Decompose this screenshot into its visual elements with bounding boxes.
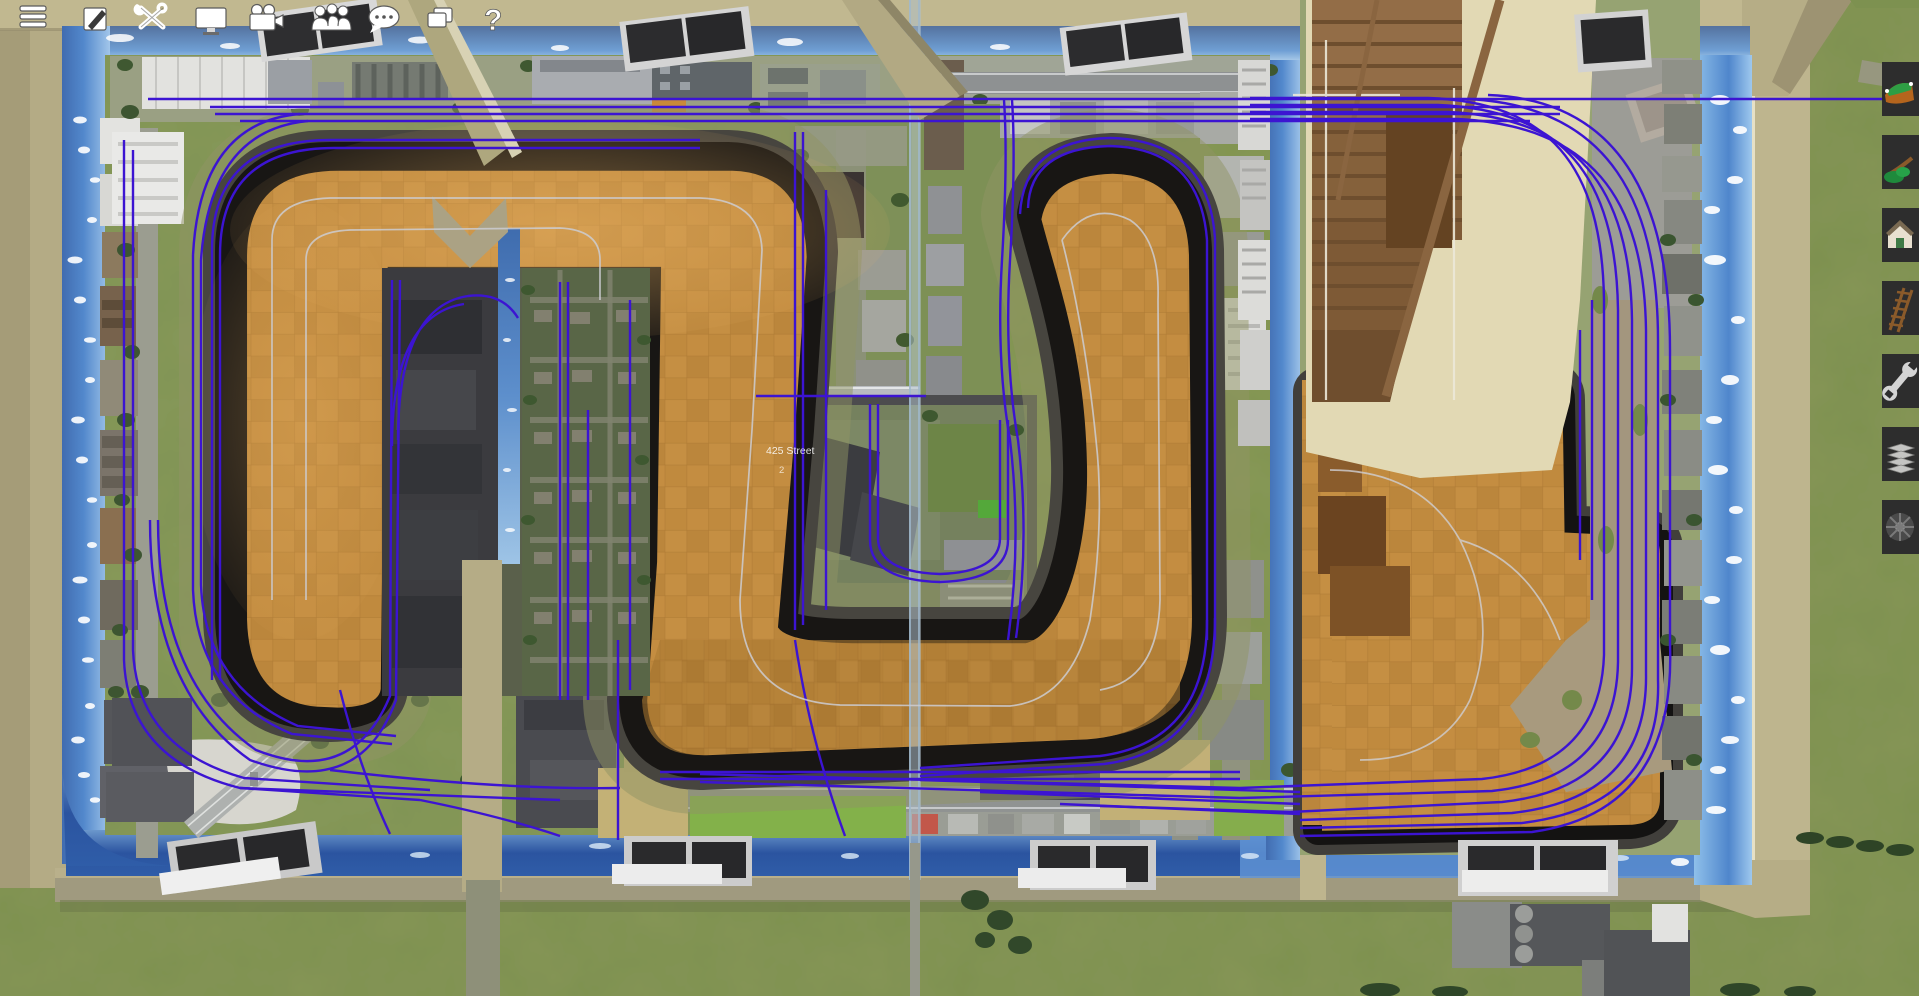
svg-text:2: 2 <box>779 465 784 476</box>
svg-text:425 Street: 425 Street <box>766 445 815 457</box>
svg-text:?: ? <box>484 4 502 37</box>
